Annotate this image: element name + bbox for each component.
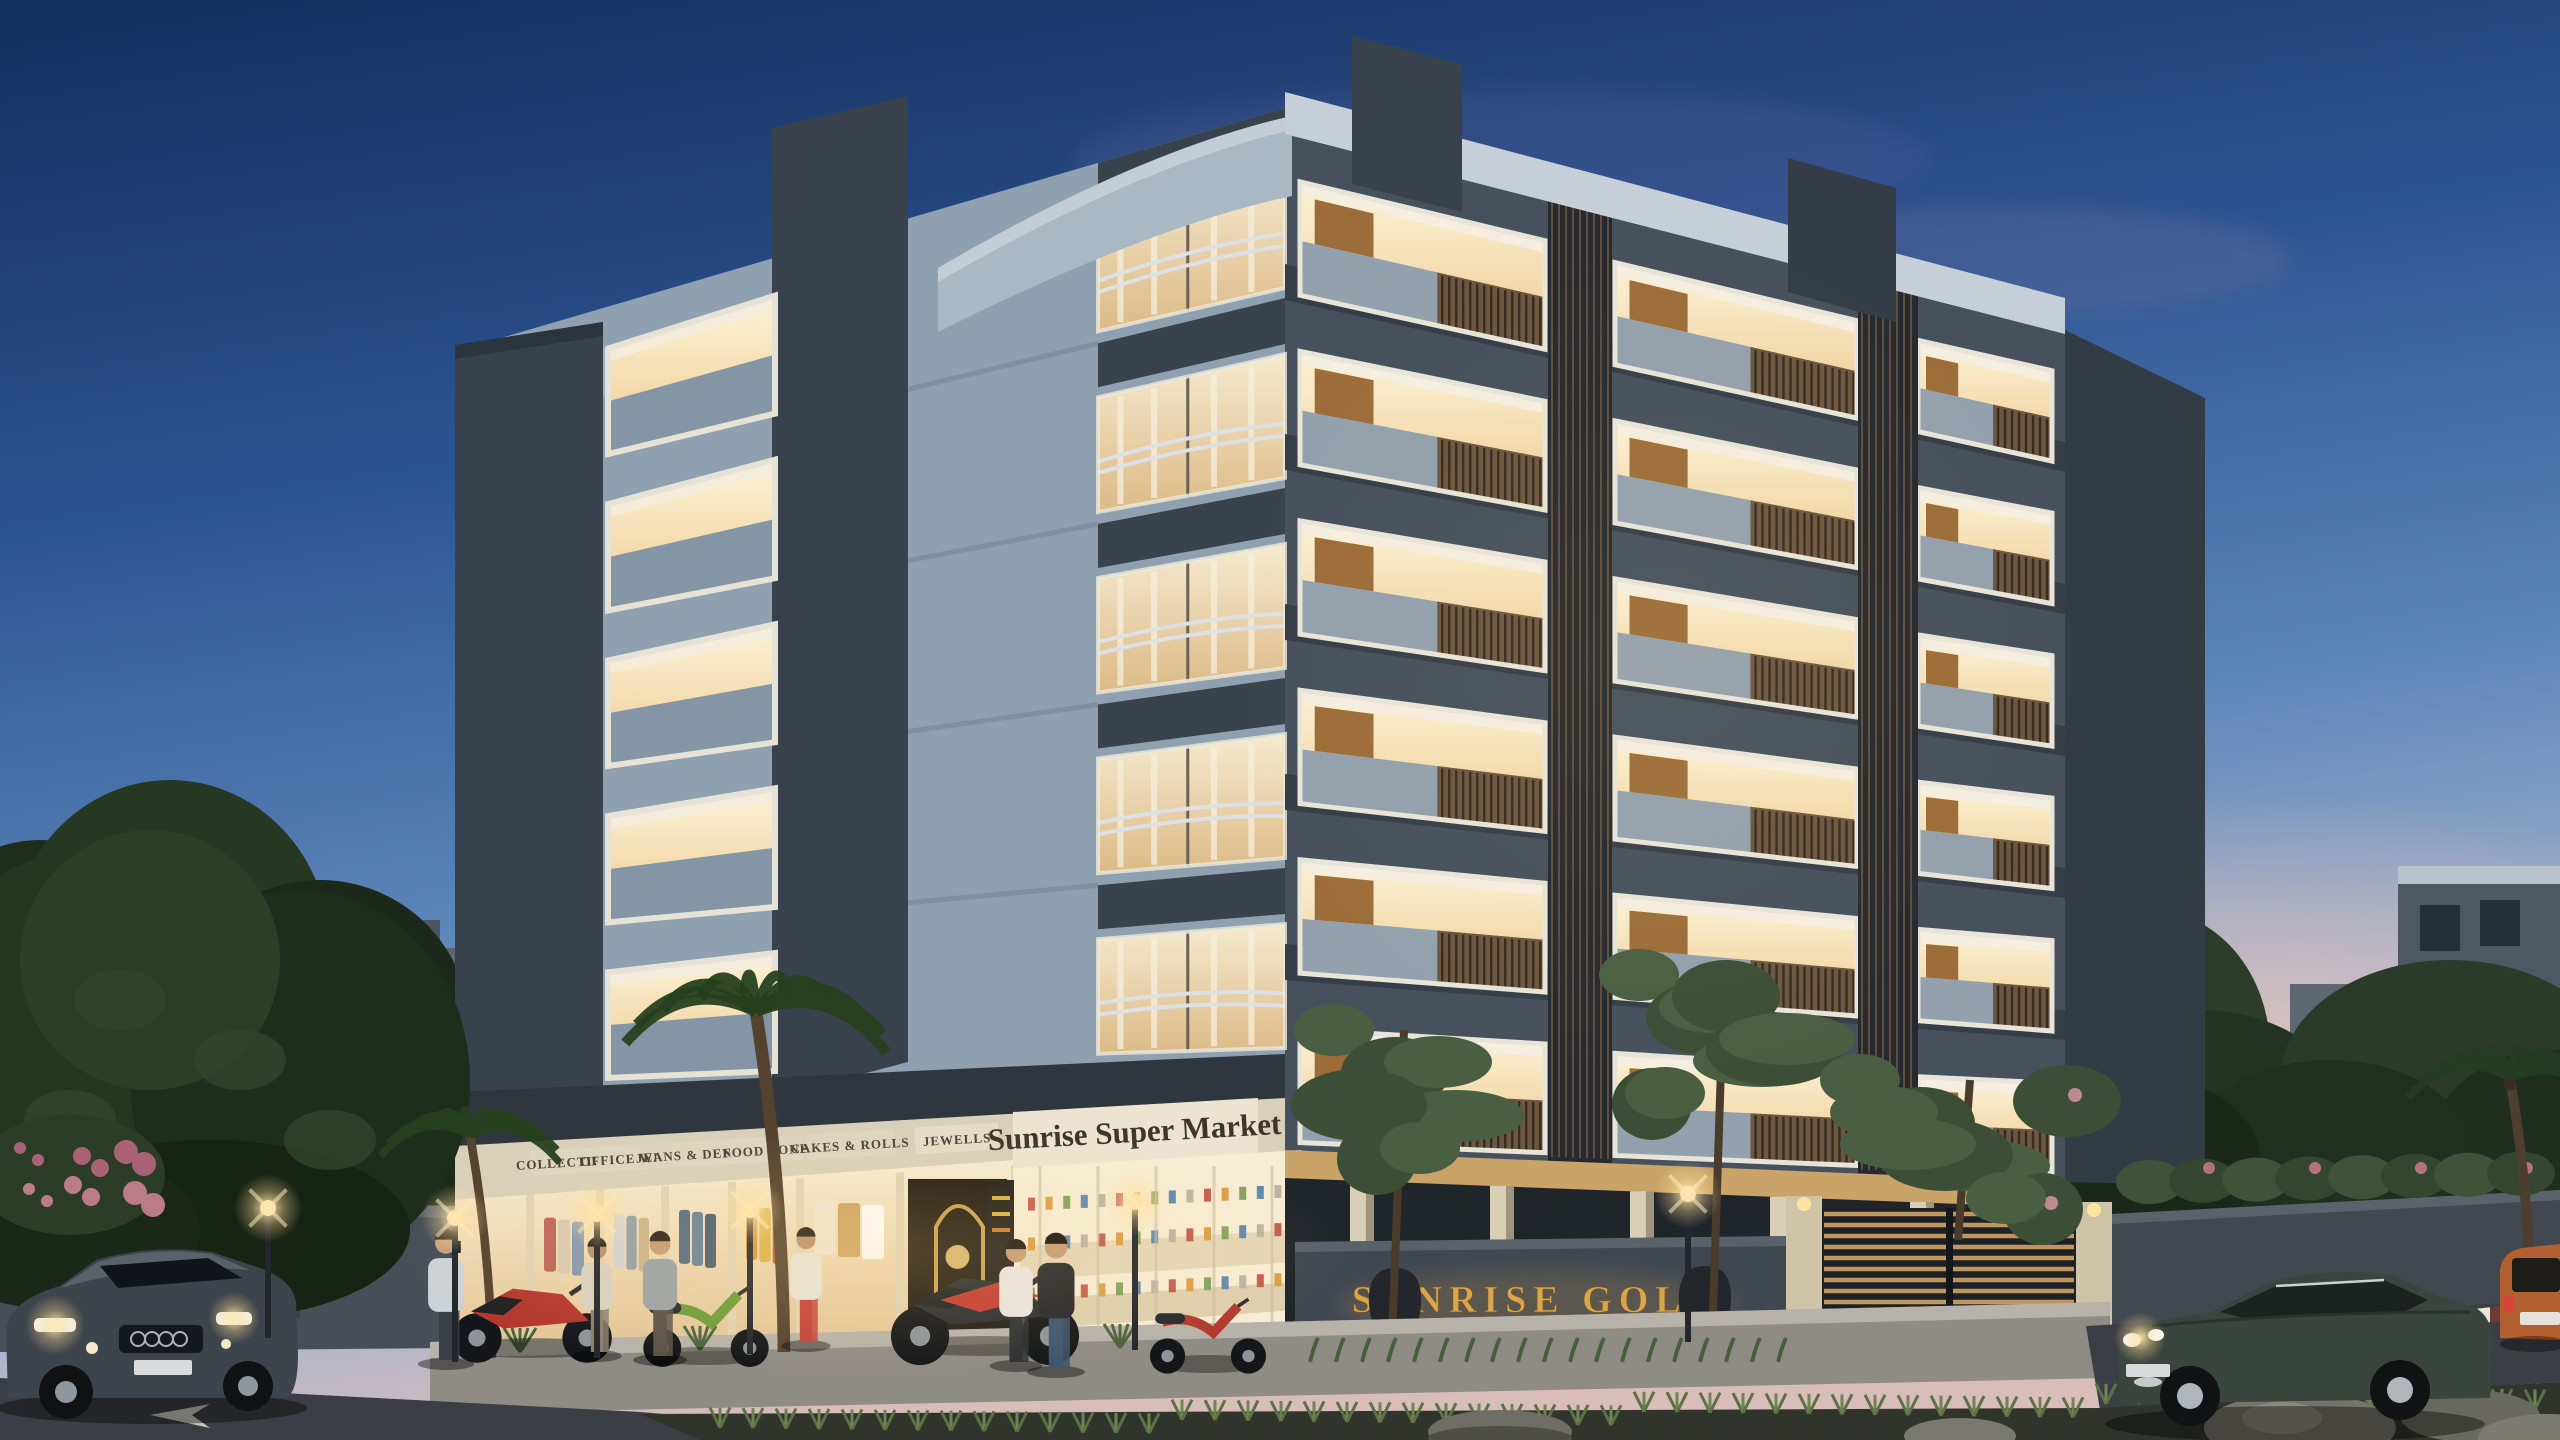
bougainvillea-flowers xyxy=(23,1183,35,1195)
leaf-highlight xyxy=(194,1030,286,1090)
bougainvillea-flowers xyxy=(82,1188,100,1206)
bike-rim xyxy=(468,1329,485,1346)
bougainvillea-flowers xyxy=(132,1152,156,1176)
bougainvillea-flowers xyxy=(32,1154,44,1166)
scooter-rim xyxy=(1242,1350,1254,1362)
tree-canopy xyxy=(1840,1118,1976,1170)
left-edge-tower xyxy=(455,322,603,1180)
orange-suv-rear xyxy=(2500,1244,2560,1352)
roof-slab-a xyxy=(1352,36,1462,212)
bougainvillea-flowers xyxy=(14,1142,26,1154)
leaf-highlight xyxy=(284,1110,376,1170)
flower-cluster xyxy=(2415,1162,2427,1174)
tree-canopy xyxy=(1380,1122,1460,1174)
bougainvillea-flowers xyxy=(73,1147,91,1165)
flower-cluster xyxy=(2309,1162,2321,1174)
tree-canopy xyxy=(1966,1172,2046,1224)
scene-render: COLLECTION OFFICE WEAR JEANS & DENIMS FO… xyxy=(0,0,2560,1440)
leaf-highlight xyxy=(74,970,166,1030)
palm-crown xyxy=(2504,1078,2517,1091)
flower-cluster xyxy=(2044,1196,2058,1210)
bougainvillea-flowers xyxy=(91,1159,109,1177)
corner-glass xyxy=(1098,924,1285,1054)
bougainvillea-flowers xyxy=(141,1193,165,1217)
flower-cluster xyxy=(2068,1088,2082,1102)
dusk-building-scene: COLLECTION OFFICE WEAR JEANS & DENIMS FO… xyxy=(0,0,2560,1440)
slat-railing xyxy=(1993,983,2052,1031)
scooter-rim xyxy=(1161,1350,1173,1362)
bougainvillea-flowers xyxy=(64,1176,82,1194)
right-return-wall xyxy=(2065,330,2205,1185)
bougainvillea-flowers xyxy=(41,1195,53,1207)
flower-cluster xyxy=(2203,1162,2215,1174)
tree-canopy xyxy=(2013,1065,2121,1137)
dark-slab-left xyxy=(772,96,908,1098)
